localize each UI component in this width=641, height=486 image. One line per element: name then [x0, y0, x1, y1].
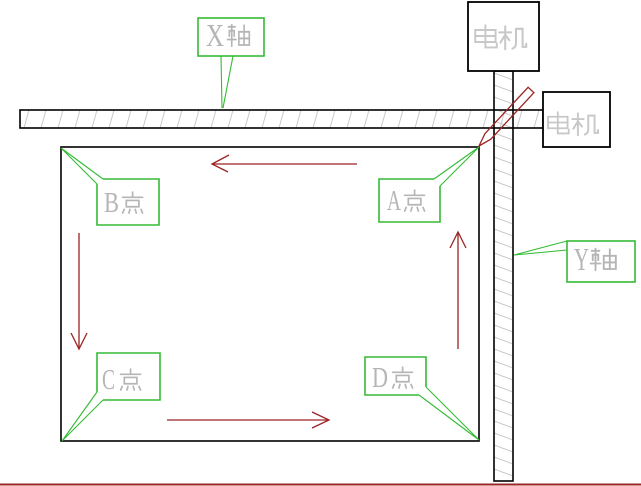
svg-text:Y: Y [574, 241, 589, 277]
svg-text:B: B [104, 188, 119, 219]
svg-text:C: C [102, 365, 115, 396]
svg-text:A: A [387, 186, 402, 217]
svg-text:D: D [372, 363, 388, 394]
svg-text:X: X [206, 17, 224, 53]
